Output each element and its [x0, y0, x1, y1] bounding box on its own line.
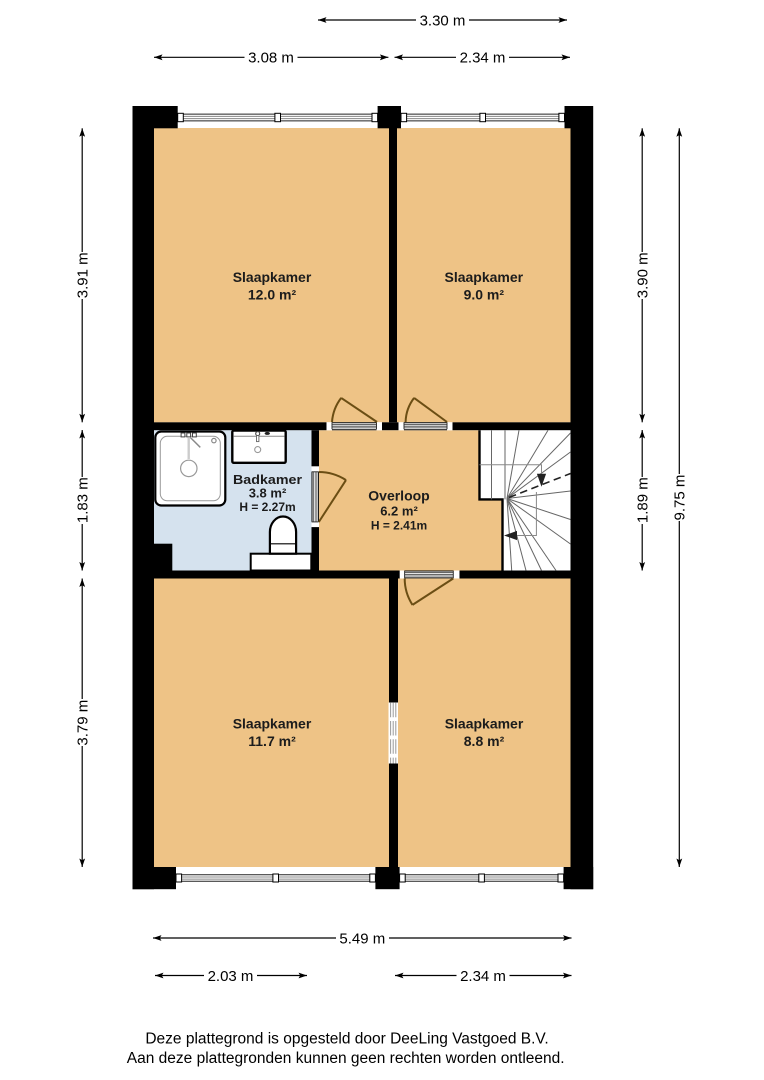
svg-text:H = 2.27m: H = 2.27m	[239, 500, 295, 514]
svg-text:3.91 m: 3.91 m	[75, 252, 92, 298]
svg-text:1.89 m: 1.89 m	[635, 477, 652, 523]
svg-text:3.30 m: 3.30 m	[420, 12, 466, 29]
svg-text:3.8 m²: 3.8 m²	[249, 485, 287, 500]
svg-text:9.0 m²: 9.0 m²	[464, 287, 505, 303]
svg-text:Aan deze plattegronden kunnen: Aan deze plattegronden kunnen geen recht…	[127, 1050, 565, 1067]
svg-text:2.03 m: 2.03 m	[208, 968, 254, 985]
svg-text:Slaapkamer: Slaapkamer	[445, 716, 524, 732]
svg-text:2.34 m: 2.34 m	[460, 968, 506, 985]
svg-text:12.0 m²: 12.0 m²	[248, 287, 297, 303]
svg-text:8.8 m²: 8.8 m²	[464, 733, 505, 749]
svg-text:H = 2.41m: H = 2.41m	[371, 519, 427, 533]
svg-text:5.49 m: 5.49 m	[339, 930, 385, 947]
svg-text:6.2 m²: 6.2 m²	[380, 503, 418, 518]
svg-text:1.83 m: 1.83 m	[75, 477, 92, 523]
svg-text:11.7 m²: 11.7 m²	[248, 733, 296, 749]
svg-text:Slaapkamer: Slaapkamer	[233, 716, 312, 732]
svg-text:Slaapkamer: Slaapkamer	[444, 269, 523, 285]
svg-text:2.34 m: 2.34 m	[460, 50, 506, 67]
svg-text:9.75 m: 9.75 m	[672, 475, 689, 521]
svg-text:3.79 m: 3.79 m	[75, 700, 92, 746]
svg-text:Overloop: Overloop	[368, 488, 429, 504]
svg-text:Deze plattegrond is opgesteld: Deze plattegrond is opgesteld door DeeLi…	[145, 1030, 548, 1047]
svg-text:3.08 m: 3.08 m	[248, 50, 294, 67]
svg-text:Slaapkamer: Slaapkamer	[233, 269, 312, 285]
svg-text:3.90 m: 3.90 m	[635, 252, 652, 298]
